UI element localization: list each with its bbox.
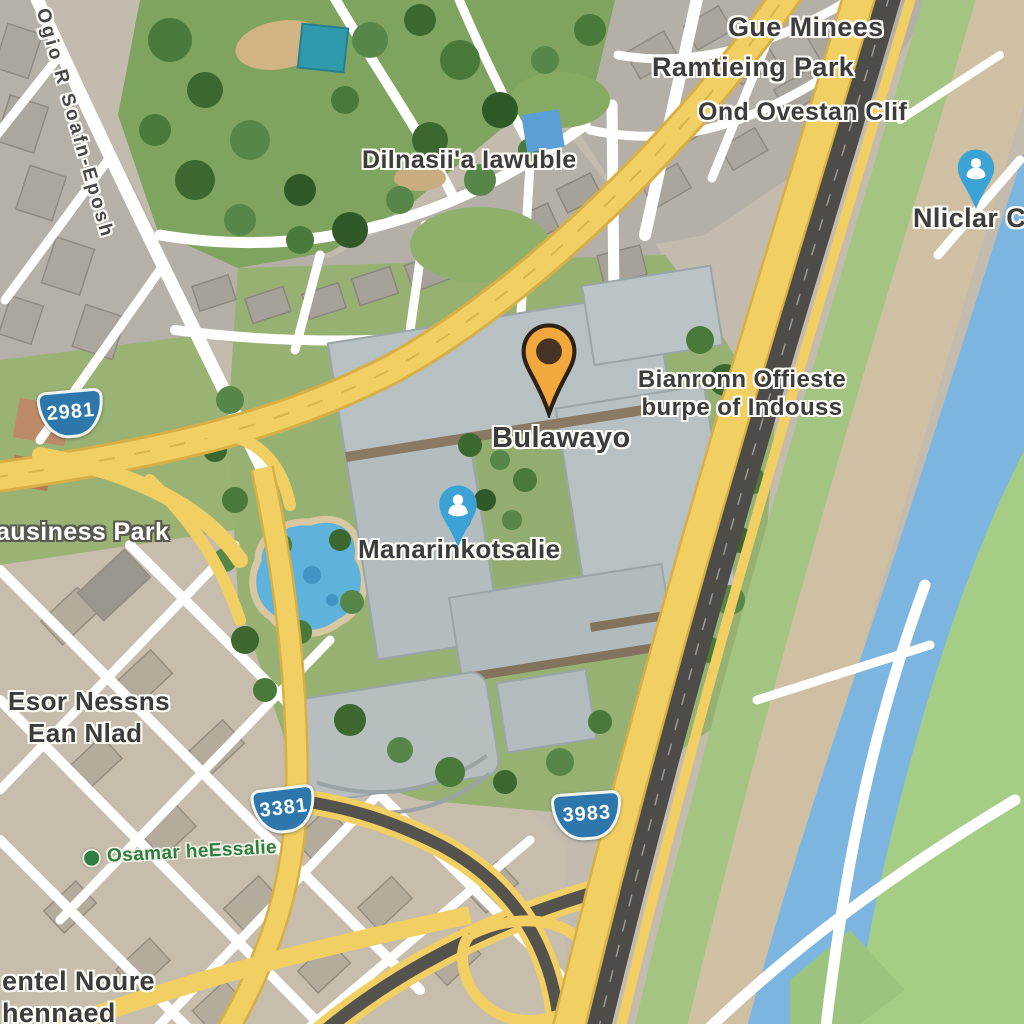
map-label-bianronn-line1: Bianronn Offieste [632, 366, 852, 394]
destination-pin-icon [520, 322, 578, 418]
map-label-esor-line1[interactable]: Esor Nessns [8, 686, 170, 717]
map-label-bianronn[interactable]: Bianronn Offieste burpe of Indouss [632, 366, 852, 421]
map-label-dilnasii[interactable]: Dilnasii'a Iawuble [362, 146, 577, 175]
poi-person-pin-icon [952, 148, 1000, 212]
map-label-esor-line2[interactable]: Ean Nlad [28, 718, 142, 749]
map-label-business-park[interactable]: ausiness Park [0, 518, 169, 547]
destination-pin[interactable] [520, 322, 578, 418]
poi-pin-nliclar[interactable] [952, 148, 1000, 212]
map-label-ramtieing-park[interactable]: Ramtieing Park [652, 52, 854, 83]
map-canvas[interactable]: Gue Minees Ramtieing Park Ond Ovestan Cl… [0, 0, 1024, 1024]
map-label-bulawayo[interactable]: Bulawayo [492, 422, 631, 455]
poi-pin-manarinkotsalie[interactable] [437, 482, 479, 552]
park-poi-icon [82, 848, 102, 868]
poi-person-pin-icon [437, 482, 479, 552]
map-label-bianronn-line2: burpe of Indouss [632, 394, 852, 422]
map-label-ond-ovestan-clif[interactable]: Ond Ovestan Clif [698, 98, 907, 127]
map-label-entel-line1[interactable]: entel Noure [2, 966, 155, 997]
map-label-entel-line2[interactable]: hennaed [2, 998, 116, 1024]
map-label-gue-minees[interactable]: Gue Minees [728, 12, 884, 43]
